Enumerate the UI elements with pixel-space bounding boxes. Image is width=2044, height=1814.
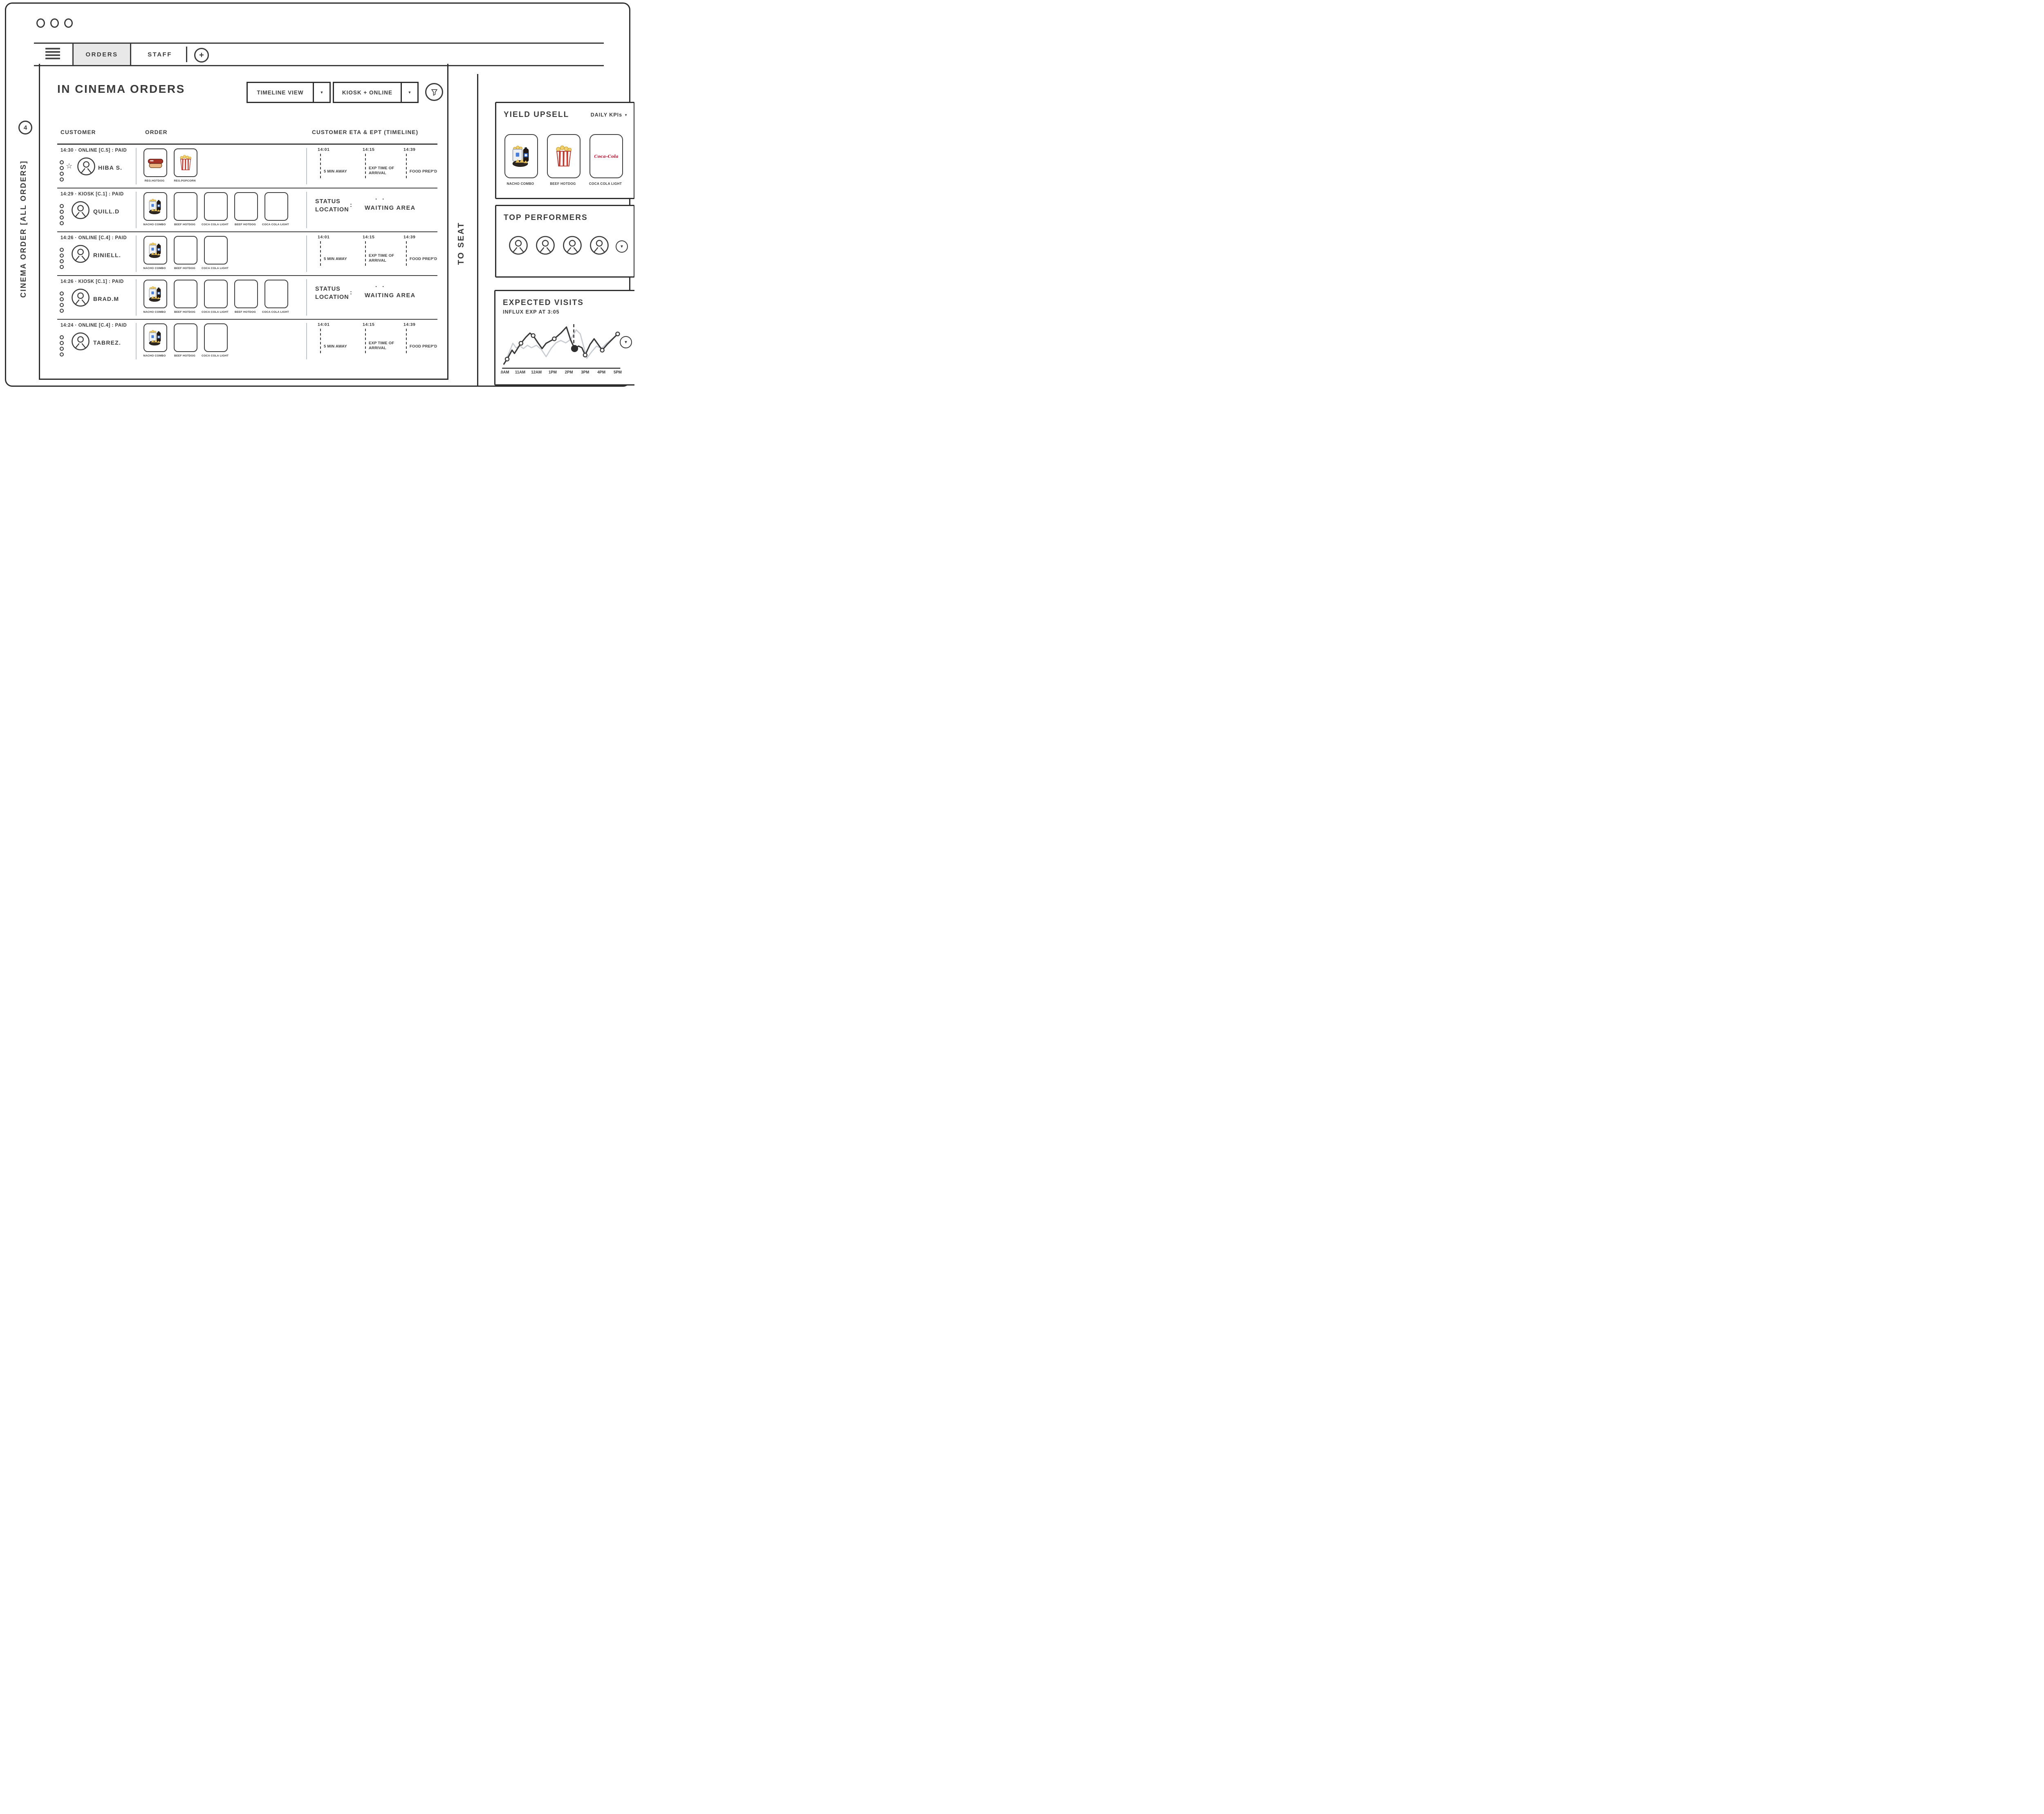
upsell-item-label: NACHO COMBO <box>502 182 539 186</box>
kebab-menu-icon[interactable] <box>60 248 64 269</box>
influx-subtitle: INFLUX EXP AT 3:05 <box>503 309 560 315</box>
order-item-box <box>204 280 228 308</box>
order-item-label: NACHO COMBO <box>139 267 170 270</box>
expand-performers-button[interactable]: ▼ <box>616 240 628 253</box>
timeline-dash <box>406 329 407 353</box>
source-dropdown[interactable]: KIOSK + ONLINE ▼ <box>333 82 419 103</box>
timeline-dash <box>406 154 407 178</box>
order-item-box <box>174 236 197 265</box>
status-accent-marks: · · <box>375 196 386 203</box>
page-title: IN CINEMA ORDERS <box>57 83 185 96</box>
avatar <box>71 288 90 307</box>
order-item-box <box>264 192 288 221</box>
avatar <box>71 201 90 220</box>
order-item-box <box>143 192 167 221</box>
avatar <box>71 244 90 263</box>
status-label: STATUSLOCATION <box>315 285 349 302</box>
tab-orders-label: ORDERS <box>85 51 118 58</box>
nacho-combo-icon <box>509 144 533 168</box>
order-item-box <box>204 192 228 221</box>
order-item-label: COCA COLA LIGHT <box>200 354 230 357</box>
customer-name: RINIELL. <box>93 252 121 258</box>
order-item-label: COCA COLA LIGHT <box>260 311 291 314</box>
customer-name: HIBA S. <box>98 164 122 171</box>
popcorn-icon <box>177 154 194 171</box>
app-window: ORDERS STAFF + 4 CINEMA ORDER [ALL ORDER… <box>0 0 634 388</box>
kebab-menu-icon[interactable] <box>60 204 64 225</box>
order-item-label: COCA COLA LIGHT <box>200 223 230 226</box>
order-item-label: COCA COLA LIGHT <box>200 311 230 314</box>
kebab-menu-icon[interactable] <box>60 291 64 313</box>
yield-upsell-panel: YIELD UPSELL DAILY KPIs▼ NACHO COMBO BEE… <box>495 102 634 199</box>
upsell-item[interactable]: Coca-Cola COCA COLA LIGHT <box>589 134 621 186</box>
order-item-label: BEEF HOTDOG <box>170 354 200 357</box>
order-item-label: NACHO COMBO <box>139 311 170 314</box>
kebab-menu-icon[interactable] <box>60 335 64 357</box>
order-item-box <box>174 192 197 221</box>
avatar <box>77 157 96 176</box>
svg-text:2PM: 2PM <box>565 370 573 375</box>
upsell-item-box <box>547 134 580 178</box>
order-item-label: REG.POPCORN <box>170 179 200 182</box>
status-value: WAITING AREA <box>365 292 416 299</box>
timeline-dash <box>320 154 321 178</box>
performer-avatar[interactable] <box>536 235 555 255</box>
order-item-box <box>264 280 288 308</box>
kebab-menu-icon[interactable] <box>60 160 64 182</box>
eta-time: 14:15 <box>363 322 405 327</box>
view-dropdown[interactable]: TIMELINE VIEW ▼ <box>247 82 331 103</box>
order-meta: 14:26 · KIOSK [C.1] : PAID <box>61 279 124 284</box>
performer-avatar[interactable] <box>589 235 609 255</box>
status-colon: : <box>350 289 352 296</box>
eta-label: EXP TIME OF ARRIVAL <box>369 341 401 351</box>
add-tab-button[interactable]: + <box>194 48 209 63</box>
order-item-box <box>174 323 197 352</box>
order-meta: 14:29 · KIOSK [C.1] : PAID <box>61 192 124 197</box>
svg-text:5PM: 5PM <box>614 370 622 375</box>
nacho-combo-icon <box>147 285 164 303</box>
order-item-box <box>143 280 167 308</box>
window-dot-icon[interactable] <box>50 18 59 28</box>
order-item-label: BEEF HOTDOG <box>230 311 260 314</box>
svg-text:Coca-Cola: Coca-Cola <box>594 154 618 159</box>
order-item-label: BEEF HOTDOG <box>230 223 260 226</box>
timeline-milestone: 14:015 MIN AWAY <box>318 322 360 353</box>
window-dot-icon[interactable] <box>64 18 73 28</box>
order-meta: 14:26 · ONLINE [C.4] : PAID <box>61 235 127 240</box>
order-meta: 14:30 · ONLINE [C.5] : PAID <box>61 148 127 153</box>
window-frame: ORDERS STAFF + 4 CINEMA ORDER [ALL ORDER… <box>5 2 630 387</box>
yield-upsell-title: YIELD UPSELL <box>504 110 569 119</box>
timeline-milestone: 14:39FOOD PREP'D <box>403 322 446 353</box>
eta-label: EXP TIME OF ARRIVAL <box>369 253 401 264</box>
order-row[interactable]: 14:26 · KIOSK [C.1] : PAID BRAD.M NACHO … <box>57 275 437 319</box>
order-item-label: COCA COLA LIGHT <box>200 267 230 270</box>
order-item-label: BEEF HOTDOG <box>170 267 200 270</box>
chevron-down-icon: ▼ <box>624 340 628 345</box>
timeline-dash <box>320 329 321 353</box>
eta-time: 14:15 <box>363 147 405 152</box>
expected-visits-chart: 10AM11AM12AM1PM2PM3PM4PM5PM <box>500 316 624 379</box>
svg-text:11AM: 11AM <box>515 370 525 375</box>
column-header-timeline: CUSTOMER ETA & EPT (TIMELINE) <box>312 129 418 135</box>
status-value: WAITING AREA <box>365 205 416 211</box>
expected-visits-panel: EXPECTED VISITS INFLUX EXP AT 3:05 10AM1… <box>494 290 634 386</box>
eta-label: EXP TIME OF ARRIVAL <box>369 166 401 176</box>
daily-kpis-dropdown[interactable]: DAILY KPIs▼ <box>591 112 628 118</box>
source-dropdown-value: KIOSK + ONLINE <box>334 83 401 102</box>
order-row[interactable]: 14:30 · ONLINE [C.5] : PAID ☆ HIBA S. RE… <box>57 145 437 188</box>
order-item-box <box>234 280 258 308</box>
order-row[interactable]: 14:26 · ONLINE [C.4] : PAID RINIELL. NAC… <box>57 231 437 275</box>
window-controls[interactable] <box>36 18 73 28</box>
order-row[interactable]: 14:24 · ONLINE [C.4] : PAID TABREZ. NACH… <box>57 319 437 363</box>
eta-label: 5 MIN AWAY <box>324 169 356 174</box>
tab-staff-label: STAFF <box>148 51 172 58</box>
order-item-box <box>234 192 258 221</box>
column-header-order: ORDER <box>145 129 168 135</box>
timeline-milestone: 14:39FOOD PREP'D <box>403 147 446 178</box>
svg-text:3PM: 3PM <box>581 370 589 375</box>
expected-visits-title: EXPECTED VISITS <box>503 298 584 307</box>
order-item-box <box>143 236 167 265</box>
column-divider <box>136 279 137 316</box>
top-performers-title: TOP PERFORMERS <box>504 213 588 222</box>
eta-label: FOOD PREP'D <box>410 169 442 174</box>
order-item-label: NACHO COMBO <box>139 223 170 226</box>
column-divider <box>136 192 137 228</box>
customer-name: TABREZ. <box>93 339 121 346</box>
daily-kpis-label: DAILY KPIs <box>591 112 622 118</box>
window-dot-icon[interactable] <box>36 18 45 28</box>
timeline-milestone: 14:15EXP TIME OF ARRIVAL <box>363 147 405 178</box>
upsell-item-label: BEEF HOTDOG <box>544 182 582 186</box>
order-item-box <box>143 148 167 177</box>
order-item-label: COCA COLA LIGHT <box>260 223 291 226</box>
timeline-dash <box>365 154 366 178</box>
svg-text:1PM: 1PM <box>549 370 557 375</box>
customer-name: QUILL.D <box>93 208 119 215</box>
right-rail-divider <box>477 74 478 386</box>
performer-avatar[interactable] <box>509 235 528 255</box>
order-item-box <box>204 323 228 352</box>
left-rail-vertical-label: CINEMA ORDER [ALL ORDERS] <box>19 123 30 335</box>
avatar <box>71 332 90 351</box>
eta-label: 5 MIN AWAY <box>324 257 356 262</box>
order-item-label: BEEF HOTDOG <box>170 311 200 314</box>
view-dropdown-value: TIMELINE VIEW <box>248 83 313 102</box>
plus-icon: + <box>199 51 204 59</box>
column-divider <box>136 323 137 359</box>
timeline-dash <box>365 329 366 353</box>
svg-text:10AM: 10AM <box>500 370 509 375</box>
nacho-combo-icon <box>147 329 164 346</box>
svg-text:12AM: 12AM <box>531 370 542 375</box>
upsell-item[interactable]: BEEF HOTDOG <box>547 134 579 186</box>
orders-panel: IN CINEMA ORDERS TIMELINE VIEW ▼ KIOSK +… <box>39 64 448 380</box>
filter-button[interactable] <box>425 83 443 101</box>
order-item-box <box>174 148 197 177</box>
eta-label: 5 MIN AWAY <box>324 344 356 349</box>
tab-orders[interactable]: ORDERS <box>72 44 131 65</box>
eta-label: FOOD PREP'D <box>410 257 442 262</box>
column-header-customer: CUSTOMER <box>61 129 96 135</box>
timeline-milestone: 14:15EXP TIME OF ARRIVAL <box>363 235 405 266</box>
column-divider <box>136 148 137 184</box>
eta-label: FOOD PREP'D <box>410 344 442 349</box>
hamburger-menu-icon[interactable] <box>45 48 60 59</box>
order-meta: 14:24 · ONLINE [C.4] : PAID <box>61 323 127 328</box>
status-label: STATUSLOCATION <box>315 197 349 214</box>
hotdog-icon <box>147 154 164 171</box>
top-performers-panel: TOP PERFORMERS ▼ <box>495 205 634 278</box>
eta-time: 14:15 <box>363 235 405 240</box>
column-divider <box>136 235 137 272</box>
expand-visits-button[interactable]: ▼ <box>620 336 632 348</box>
order-item-box <box>143 323 167 352</box>
upsell-item[interactable]: NACHO COMBO <box>504 134 536 186</box>
chevron-down-icon[interactable]: ▼ <box>401 83 417 102</box>
chevron-down-icon[interactable]: ▼ <box>313 83 329 102</box>
timeline-dash <box>320 241 321 266</box>
eta-time: 14:39 <box>403 322 446 327</box>
order-item-box <box>204 236 228 265</box>
eta-time: 14:39 <box>403 235 446 240</box>
column-divider <box>306 235 307 272</box>
column-divider <box>306 148 307 184</box>
order-row[interactable]: 14:29 · KIOSK [C.1] : PAID QUILL.D NACHO… <box>57 188 437 231</box>
coca-cola-logo-icon: Coca-Cola <box>594 144 618 168</box>
timeline-milestone: 14:15EXP TIME OF ARRIVAL <box>363 322 405 353</box>
order-item-label: NACHO COMBO <box>139 354 170 357</box>
nacho-combo-icon <box>147 198 164 215</box>
upsell-item-box <box>504 134 538 178</box>
orders-table: 14:30 · ONLINE [C.5] : PAID ☆ HIBA S. RE… <box>57 144 437 363</box>
popcorn-icon <box>552 144 576 168</box>
column-divider <box>306 279 307 316</box>
eta-time: 14:01 <box>318 235 360 240</box>
top-navigation-bar: ORDERS STAFF + <box>34 43 604 66</box>
chevron-down-icon: ▼ <box>624 113 628 117</box>
column-divider <box>306 192 307 228</box>
svg-text:4PM: 4PM <box>597 370 605 375</box>
timeline-milestone: 14:39FOOD PREP'D <box>403 235 446 266</box>
order-item-label: BEEF HOTDOG <box>170 223 200 226</box>
order-item-label: REG.HOTDOG <box>139 179 170 182</box>
timeline-dash <box>365 241 366 266</box>
filter-funnel-icon <box>430 88 438 96</box>
timeline-milestone: 14:015 MIN AWAY <box>318 147 360 178</box>
tab-staff[interactable]: STAFF <box>137 44 183 65</box>
eta-time: 14:01 <box>318 147 360 152</box>
to-seat-label: TO SEAT <box>457 211 466 276</box>
timeline-milestone: 14:015 MIN AWAY <box>318 235 360 266</box>
status-accent-marks: · · <box>375 283 386 290</box>
eta-time: 14:39 <box>403 147 446 152</box>
status-colon: : <box>350 202 352 209</box>
customer-name: BRAD.M <box>93 296 119 302</box>
chevron-down-icon: ▼ <box>620 244 624 249</box>
order-item-box <box>174 280 197 308</box>
eta-time: 14:01 <box>318 322 360 327</box>
column-divider <box>306 323 307 359</box>
performer-avatar[interactable] <box>563 235 582 255</box>
timeline-dash <box>406 241 407 266</box>
upsell-item-label: COCA COLA LIGHT <box>587 182 624 186</box>
nacho-combo-icon <box>147 242 164 259</box>
topbar-divider <box>186 47 187 62</box>
upsell-item-box: Coca-Cola <box>589 134 623 178</box>
star-icon[interactable]: ☆ <box>66 162 72 170</box>
